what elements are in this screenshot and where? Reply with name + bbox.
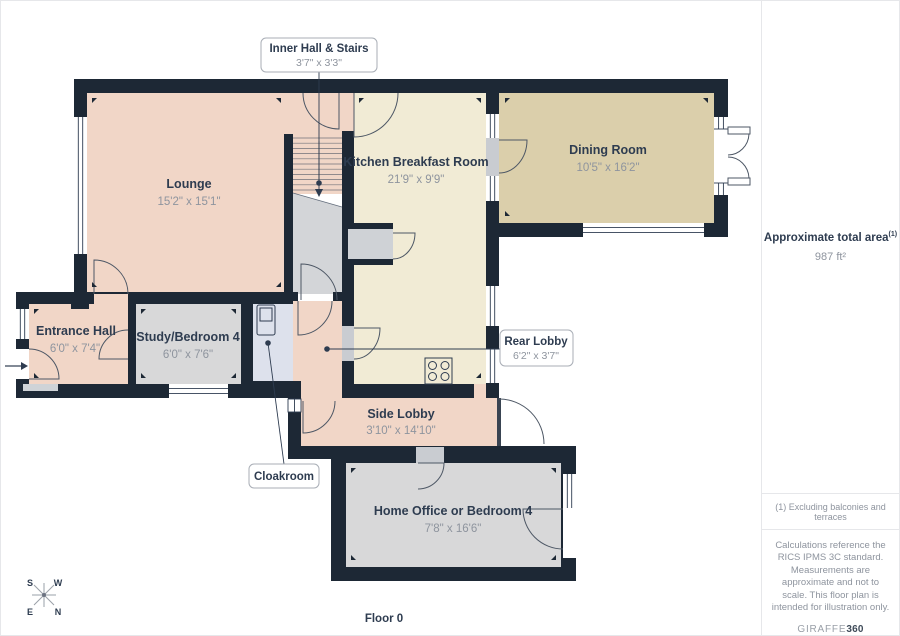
window-kitchen-east-1 [486,114,499,138]
compass-icon: S W E N [27,578,63,617]
callout-rear-lobby-name: Rear Lobby [504,336,568,348]
dims-lounge: 15'2" x 15'1" [157,196,220,208]
brand-suffix: 360 [846,624,863,635]
window-entrance-west [16,309,29,339]
label-kitchen: Kitchen Breakfast Room [343,155,488,169]
disclaimer-text: Calculations reference the RICS IPMS 3C … [771,540,890,615]
dims-kitchen: 21'9" x 9'9" [388,174,445,186]
room-study [136,304,241,384]
room-dining [499,93,714,223]
window-lounge-west [74,117,87,254]
window-dining-south [583,223,704,237]
dims-side-lobby: 3'10" x 14'10" [366,425,435,437]
callout-inner-hall-name: Inner Hall & Stairs [269,43,368,55]
dining-french-door-opening [714,117,728,195]
dims-study: 6'0" x 7'6" [163,349,213,361]
floorplan-page: Lounge 15'2" x 15'1" Kitchen Breakfast R… [0,0,900,636]
room-cloakroom [253,301,293,381]
floor-label: Floor 0 [365,613,403,625]
compass-s: S [27,578,33,588]
info-sidebar: Approximate total area(1) 987 ft² (1) Ex… [761,1,899,635]
window-kitchen-east-3 [486,286,499,326]
innerhall-kitchen-opening [342,93,354,133]
callout-dot-cloakroom [265,340,271,346]
label-entrance-hall: Entrance Hall [36,324,116,338]
callout-dot-inner-hall [316,180,322,186]
room-side-lobby [301,398,498,446]
callout-dot-rear-lobby [324,346,330,352]
side-lobby-exterior-door-leaf [497,398,501,446]
callout-inner-hall-dims: 3'7" x 3'3" [296,57,342,69]
window-home-office-east [563,474,576,508]
window-kitchen-east-2 [486,176,499,201]
footnote-text: (1) Excluding balconies and terraces [762,494,899,528]
room-inner-hall [293,93,342,134]
dims-dining: 10'5" x 16'2" [576,162,639,174]
dims-entrance-hall: 6'0" x 7'4" [50,343,100,355]
room-lounge [87,93,293,294]
dims-home-office: 7'8" x 16'6" [425,523,482,535]
label-side-lobby: Side Lobby [367,407,434,421]
total-area-section: Approximate total area(1) 987 ft² [762,1,899,493]
understairs-area [293,193,342,294]
label-study: Study/Bedroom 4 [136,330,240,344]
window-kitchen-east-4 [486,349,499,383]
total-area-label: Approximate total area(1) [764,231,897,244]
window-study-south [169,384,228,398]
callout-cloakroom-name: Cloakroom [254,471,314,483]
compass-w: W [54,578,63,588]
callout-rear-lobby-dims: 6'2" x 3'7" [513,350,559,362]
total-area-value: 987 ft² [815,251,846,263]
compass-n: N [55,607,62,617]
brand-name: GIRAFFE [797,624,846,635]
label-lounge: Lounge [166,177,211,191]
total-area-footnote-marker: (1) [889,231,898,238]
home-office-door-opening [563,508,576,558]
compass-e: E [27,607,33,617]
floorplan-drawing: Lounge 15'2" x 15'1" Kitchen Breakfast R… [1,1,761,635]
dining-french-doors [728,127,750,185]
door-side-lobby-exterior [499,399,544,444]
disclaimer-section: Calculations reference the RICS IPMS 3C … [762,530,899,635]
window-side-lobby-west [288,399,301,412]
brand-logo: GIRAFFE360 [771,624,890,635]
label-home-office: Home Office or Bedroom 4 [374,504,532,518]
label-dining: Dining Room [569,143,647,157]
